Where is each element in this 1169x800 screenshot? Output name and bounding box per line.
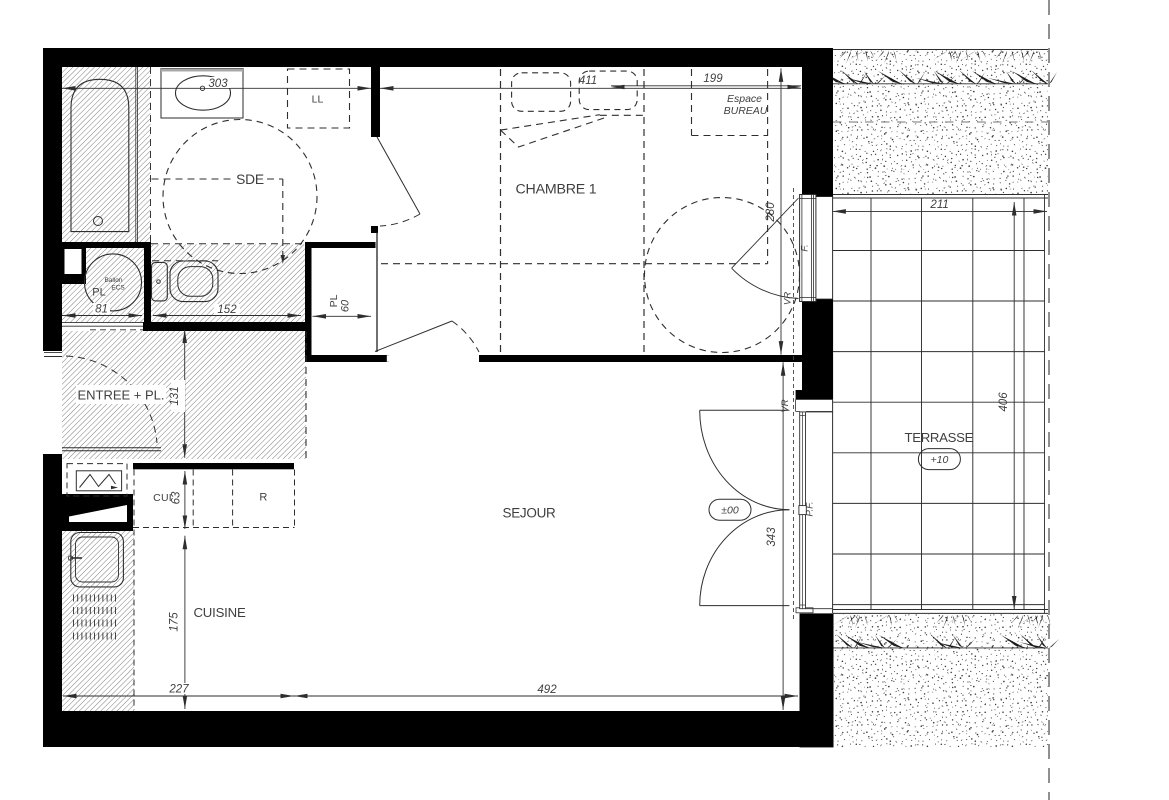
svg-text:227: 227 <box>168 684 189 696</box>
svg-text:411: 411 <box>579 75 597 87</box>
svg-text:P.F.: P.F. <box>805 502 816 517</box>
svg-text:SEJOUR: SEJOUR <box>503 506 557 521</box>
svg-text:R: R <box>259 492 267 504</box>
svg-text:±00: ±00 <box>721 505 739 517</box>
svg-text:PL: PL <box>328 294 340 307</box>
svg-text:60: 60 <box>340 299 352 312</box>
svg-text:280: 280 <box>765 202 777 223</box>
svg-text:CUISINE: CUISINE <box>193 605 245 620</box>
svg-text:Espace: Espace <box>727 93 762 105</box>
svg-text:+10: +10 <box>930 454 948 466</box>
svg-text:199: 199 <box>703 73 723 85</box>
svg-text:406: 406 <box>998 392 1010 412</box>
svg-text:Ballon: Ballon <box>104 277 122 284</box>
svg-text:CHAMBRE 1: CHAMBRE 1 <box>516 182 597 198</box>
svg-text:175: 175 <box>169 612 181 632</box>
svg-text:492: 492 <box>537 684 557 696</box>
svg-text:152: 152 <box>217 304 237 316</box>
svg-text:BUREAU: BUREAU <box>724 105 768 117</box>
svg-text:131: 131 <box>169 386 181 405</box>
svg-text:CUI: CUI <box>153 492 172 504</box>
svg-text:VR: VR <box>780 399 791 412</box>
svg-text:PL: PL <box>92 287 105 299</box>
svg-text:F.: F. <box>800 244 811 251</box>
svg-text:343: 343 <box>766 527 778 547</box>
svg-text:211: 211 <box>929 199 948 211</box>
svg-text:TERRASSE: TERRASSE <box>904 430 973 445</box>
svg-text:63: 63 <box>171 491 183 504</box>
svg-text:303: 303 <box>208 78 228 90</box>
svg-text:SDE: SDE <box>236 172 264 187</box>
svg-text:LL: LL <box>312 94 324 106</box>
svg-text:ENTREE + PL.: ENTREE + PL. <box>77 388 164 403</box>
svg-text:ECS: ECS <box>111 285 125 292</box>
svg-text:81: 81 <box>95 304 108 316</box>
svg-text:VR: VR <box>783 292 794 305</box>
